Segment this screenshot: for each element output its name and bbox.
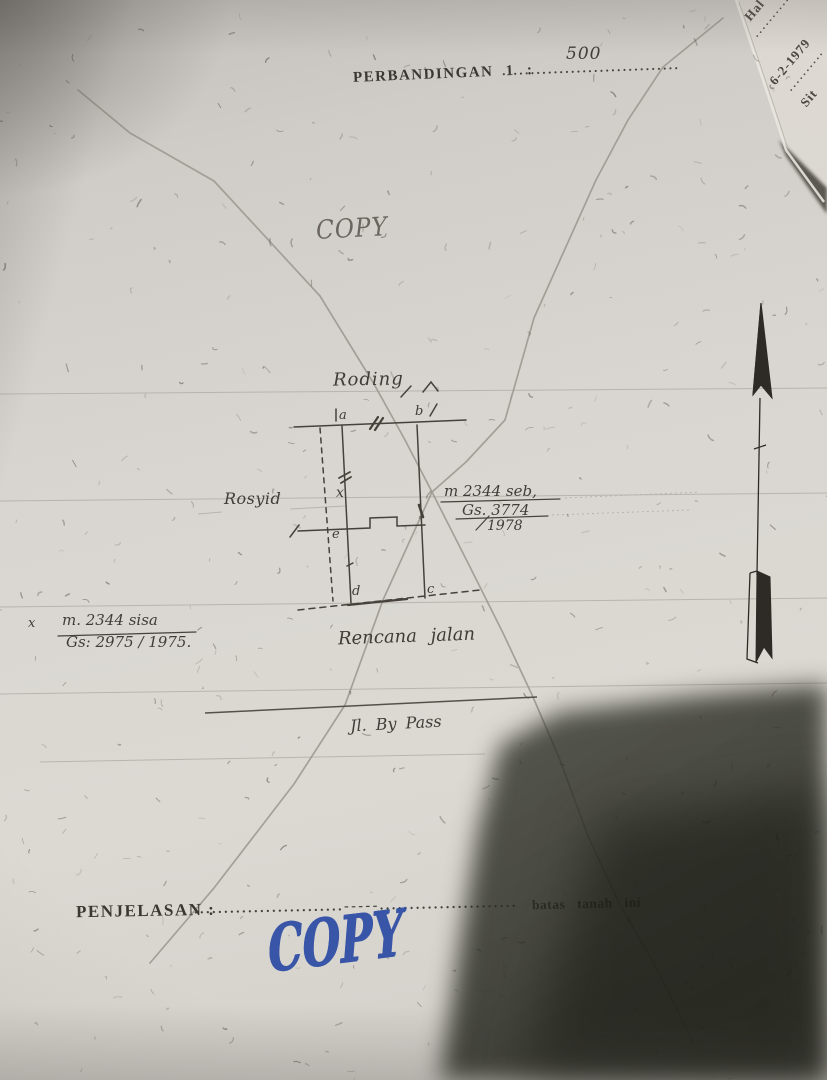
point-label-c: c [427,582,434,597]
parcel-note-line2: Gs. 3774 [462,501,529,519]
point-label-d: d [352,584,360,599]
bypass-road-line [205,697,537,713]
adjacent-owner-label: Rosyid [224,489,281,508]
remainder-note-line1: m. 2344 sisa [62,611,158,629]
faint-guide-lines [0,388,827,762]
batas-tanah-label: batas tanah ini [532,895,641,914]
point-label-a: a [339,408,347,423]
scale-value-handwritten: 500 [566,44,601,64]
parcel-note-line1: m 2344 seb, [444,482,537,500]
parcel-note-line3: 1978 [487,518,523,534]
pencil-cross-marks [78,18,723,1042]
point-label-x: x [336,485,344,501]
point-label-b: b [415,404,423,419]
plot-south-segment [348,599,407,605]
plot-west-boundary [342,426,351,603]
plot-dashed-west-line [320,428,333,601]
page-corner-edge [736,0,824,202]
x-point-tick [341,477,351,483]
point-label-e: e [332,527,340,542]
road-label-roding: Roding [333,368,404,390]
remainder-note-line2: Gs: 2975 / 1975. [66,633,191,651]
copy-stamp-pencil: COPY [315,212,388,246]
photo-of-land-survey-document: Hal ——— ·········· 6-2-1979 ·········· S… [0,0,827,1080]
north-arrow-shaft [757,398,760,575]
north-arrow-icon [747,303,772,663]
remainder-note-marker: x [28,616,35,631]
